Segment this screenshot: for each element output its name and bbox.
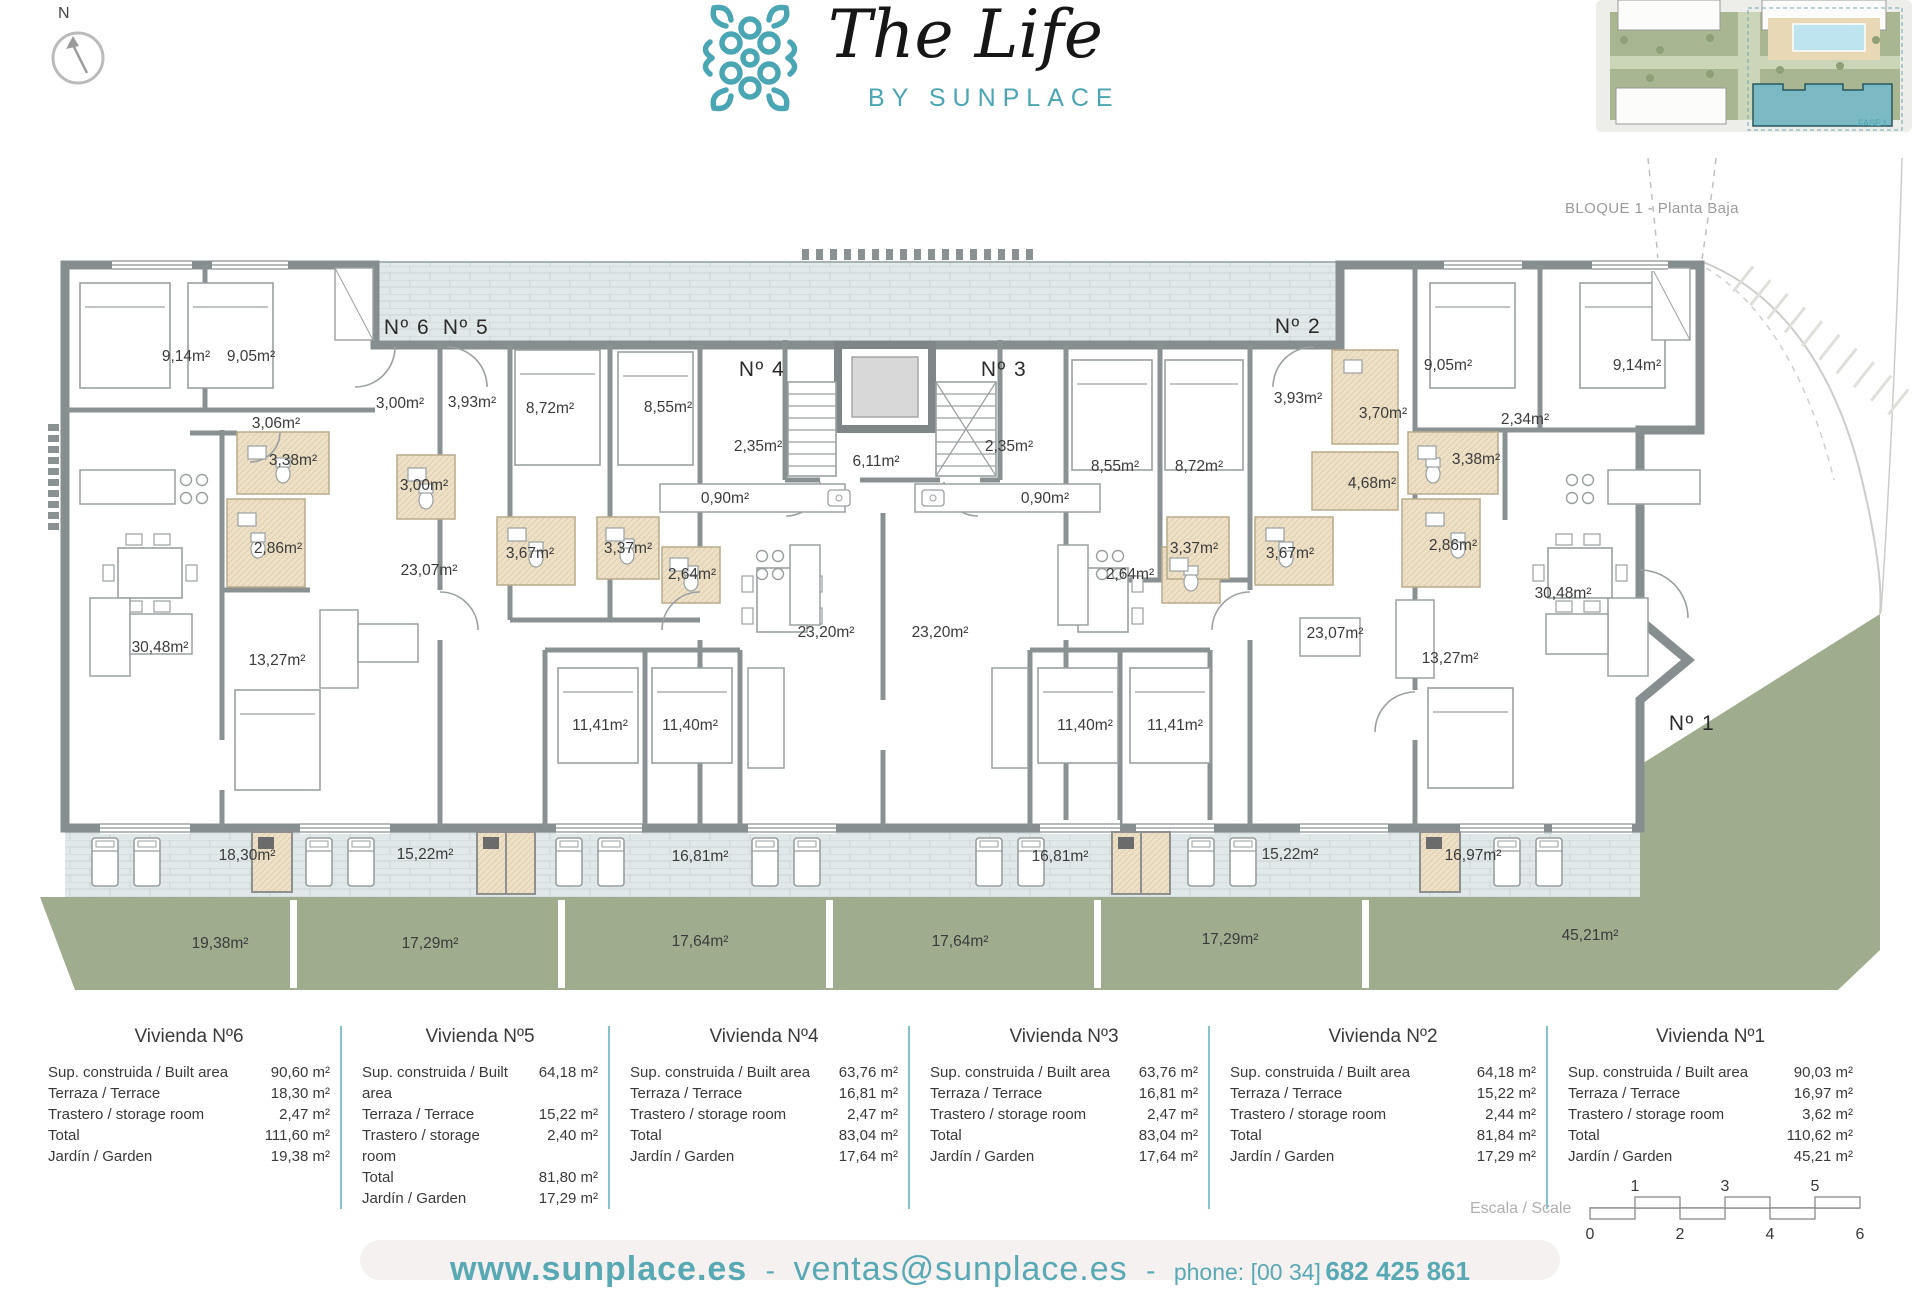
room-area-label: 2,86m² <box>1429 537 1477 554</box>
lounge-chair-icon <box>794 838 820 886</box>
scale-tick: 5 <box>1811 1178 1820 1196</box>
vivienda-title: Vivienda Nº5 <box>362 1026 598 1048</box>
scale-tick: 6 <box>1856 1226 1865 1244</box>
lounge-chair-icon <box>752 838 778 886</box>
room-area-label: 11,40m² <box>1057 717 1113 734</box>
vivienda-row-label: Trastero / storage room <box>1230 1104 1386 1125</box>
room-area-label: 8,55m² <box>644 399 692 416</box>
unit-number-label: Nº 6 <box>384 316 430 339</box>
vivienda-row: Trastero / storage room3,62 m² <box>1568 1104 1853 1125</box>
vivienda-row-label: Trastero / storage room <box>362 1125 514 1167</box>
vivienda-row-label: Jardín / Garden <box>930 1146 1034 1167</box>
room-area-label: 3,93m² <box>448 394 496 411</box>
vivienda-row: Terraza / Terrace16,81 m² <box>630 1083 898 1104</box>
room-area-label: 2,86m² <box>254 540 302 557</box>
vivienda-row-label: Sup. construida / Built area <box>630 1062 810 1083</box>
room-area-label: 23,07m² <box>401 562 458 579</box>
vivienda-title: Vivienda Nº4 <box>630 1026 898 1048</box>
room-area-label: 3,00m² <box>376 395 424 412</box>
vivienda-row: Trastero / storage room2,47 m² <box>930 1104 1198 1125</box>
vivienda-table: Vivienda Nº3Sup. construida / Built area… <box>908 1026 1208 1209</box>
room-area-label: 3,38m² <box>269 452 317 469</box>
vivienda-row-label: Total <box>630 1125 662 1146</box>
room-area-label: 3,37m² <box>1170 540 1218 557</box>
vivienda-row-value: 2,40 m² <box>514 1125 598 1167</box>
vivienda-row-label: Trastero / storage room <box>48 1104 204 1125</box>
vivienda-row-label: Sup. construida / Built area <box>1230 1062 1410 1083</box>
vivienda-row-value: 17,64 m² <box>814 1146 898 1167</box>
vivienda-row-value: 83,04 m² <box>1114 1125 1198 1146</box>
vivienda-row-value: 64,18 m² <box>514 1062 598 1104</box>
room-area-label: 9,05m² <box>227 348 275 365</box>
room-area-label: 3,67m² <box>1266 545 1314 562</box>
terrace-area-label: 16,81m² <box>672 848 729 865</box>
lounge-chair-icon <box>1230 838 1256 886</box>
vivienda-row-label: Terraza / Terrace <box>930 1083 1042 1104</box>
footer: www.sunplace.es - ventas@sunplace.es - p… <box>0 1250 1920 1289</box>
vivienda-row-value: 81,80 m² <box>514 1167 598 1188</box>
vivienda-row-value: 2,44 m² <box>1452 1104 1536 1125</box>
vivienda-row-value: 15,22 m² <box>1452 1083 1536 1104</box>
room-area-label: 13,27m² <box>1422 650 1479 667</box>
vivienda-row-label: Terraza / Terrace <box>48 1083 160 1104</box>
room-area-label: 3,93m² <box>1274 390 1322 407</box>
vivienda-row: Sup. construida / Built area90,03 m² <box>1568 1062 1853 1083</box>
terrace-area-label: 18,30m² <box>219 847 276 864</box>
vivienda-row: Jardín / Garden19,38 m² <box>48 1146 330 1167</box>
vivienda-row: Total111,60 m² <box>48 1125 330 1146</box>
unit-number-label: Nº 4 <box>739 358 785 381</box>
room-area-label: 8,72m² <box>1175 458 1223 475</box>
vivienda-row: Total81,80 m² <box>362 1167 598 1188</box>
lounge-chair-icon <box>1188 838 1214 886</box>
room-area-label: 2,34m² <box>1501 411 1549 428</box>
terrace <box>65 830 1640 897</box>
vivienda-row: Sup. construida / Built area63,76 m² <box>930 1062 1198 1083</box>
terrace-area-label: 15,22m² <box>1262 846 1319 863</box>
room-area-label: 23,07m² <box>1307 625 1364 642</box>
lounge-chair-icon <box>306 838 332 886</box>
vivienda-row-value: 17,29 m² <box>1452 1146 1536 1167</box>
vivienda-row: Trastero / storage room2,47 m² <box>630 1104 898 1125</box>
floorplan-page: { "header": { "compass_label": "N", "log… <box>0 0 1920 1280</box>
vivienda-row: Total83,04 m² <box>630 1125 898 1146</box>
lounge-chair-icon <box>976 838 1002 886</box>
vivienda-row-value: 2,47 m² <box>814 1104 898 1125</box>
vivienda-row-value: 110,62 m² <box>1769 1125 1853 1146</box>
vivienda-title: Vivienda Nº6 <box>48 1026 330 1048</box>
terrace-area-label: 16,97m² <box>1445 847 1502 864</box>
vivienda-row: Sup. construida / Built area63,76 m² <box>630 1062 898 1083</box>
vivienda-row: Sup. construida / Built area64,18 m² <box>362 1062 598 1104</box>
vivienda-row-label: Sup. construida / Built area <box>362 1062 514 1104</box>
room-area-label: 8,55m² <box>1091 458 1139 475</box>
vivienda-row-value: 19,38 m² <box>246 1146 330 1167</box>
vivienda-row: Trastero / storage room2,40 m² <box>362 1125 598 1167</box>
garden-area-label: 17,29m² <box>1202 931 1259 948</box>
vivienda-row-label: Total <box>48 1125 80 1146</box>
vivienda-row-label: Jardín / Garden <box>630 1146 734 1167</box>
lounge-chair-icon <box>348 838 374 886</box>
scale-tick: 2 <box>1676 1226 1685 1244</box>
vivienda-row-label: Trastero / storage room <box>630 1104 786 1125</box>
footer-email-link[interactable]: ventas@sunplace.es <box>793 1250 1127 1288</box>
garden-area-label: 17,29m² <box>402 935 459 952</box>
room-area-label: 11,41m² <box>572 717 628 734</box>
vivienda-row-label: Terraza / Terrace <box>1230 1083 1342 1104</box>
room-area-label: 3,67m² <box>506 545 554 562</box>
vivienda-row-value: 45,21 m² <box>1769 1146 1853 1167</box>
vivienda-row-value: 63,76 m² <box>1114 1062 1198 1083</box>
room-area-label: 11,40m² <box>662 717 718 734</box>
vivienda-row-value: 16,81 m² <box>1114 1083 1198 1104</box>
vivienda-row-value: 17,29 m² <box>514 1188 598 1209</box>
scale-tick: 1 <box>1631 1178 1640 1196</box>
room-area-label: 2,35m² <box>734 438 782 455</box>
vivienda-row: Jardín / Garden17,29 m² <box>362 1188 598 1209</box>
garden-area-label: 17,64m² <box>932 933 989 950</box>
vivienda-row: Terraza / Terrace16,97 m² <box>1568 1083 1853 1104</box>
room-area-label: 23,20m² <box>912 624 969 641</box>
vivienda-row-value: 63,76 m² <box>814 1062 898 1083</box>
footer-separator: - <box>752 1255 789 1286</box>
vivienda-row: Trastero / storage room2,47 m² <box>48 1104 330 1125</box>
vivienda-row: Terraza / Terrace18,30 m² <box>48 1083 330 1104</box>
vivienda-row: Jardín / Garden45,21 m² <box>1568 1146 1853 1167</box>
vivienda-row-label: Sup. construida / Built area <box>930 1062 1110 1083</box>
vivienda-row: Trastero / storage room2,44 m² <box>1230 1104 1536 1125</box>
room-area-label: 30,48m² <box>1535 585 1592 602</box>
vivienda-title: Vivienda Nº1 <box>1568 1026 1853 1048</box>
room-area-label: 0,90m² <box>1021 490 1069 507</box>
scale-tick: 3 <box>1721 1178 1730 1196</box>
vivienda-row-label: Jardín / Garden <box>48 1146 152 1167</box>
room-area-label: 3,00m² <box>400 477 448 494</box>
room-area-label: 2,64m² <box>1106 566 1154 583</box>
room-area-label: 30,48m² <box>132 639 189 656</box>
vivienda-row-label: Trastero / storage room <box>930 1104 1086 1125</box>
terrace-area-label: 15,22m² <box>397 846 454 863</box>
room-area-label: 9,14m² <box>1613 357 1661 374</box>
room-area-label: 9,05m² <box>1424 357 1472 374</box>
scale-label: Escala / Scale <box>1470 1200 1571 1218</box>
vivienda-row-value: 64,18 m² <box>1452 1062 1536 1083</box>
lounge-chair-icon <box>556 838 582 886</box>
vivienda-row-label: Total <box>362 1167 394 1188</box>
room-area-label: 2,35m² <box>985 438 1033 455</box>
footer-phone-label: phone: [00 34] <box>1174 1259 1321 1285</box>
room-area-label: 13,27m² <box>249 652 306 669</box>
vivienda-row: Terraza / Terrace15,22 m² <box>362 1104 598 1125</box>
scale-tick: 0 <box>1586 1226 1595 1244</box>
room-area-label: 6,11m² <box>852 453 899 470</box>
garden-area-label: 45,21m² <box>1562 927 1619 944</box>
vivienda-row: Terraza / Terrace16,81 m² <box>930 1083 1198 1104</box>
vivienda-row-value: 83,04 m² <box>814 1125 898 1146</box>
vivienda-row-value: 90,03 m² <box>1769 1062 1853 1083</box>
vivienda-row-value: 81,84 m² <box>1452 1125 1536 1146</box>
vivienda-row: Jardín / Garden17,64 m² <box>930 1146 1198 1167</box>
room-area-label: 4,68m² <box>1348 475 1396 492</box>
vivienda-row-label: Jardín / Garden <box>362 1188 466 1209</box>
vivienda-row-value: 15,22 m² <box>514 1104 598 1125</box>
room-area-label: 3,06m² <box>252 415 300 432</box>
vivienda-row-label: Total <box>1568 1125 1600 1146</box>
room-area-label: 23,20m² <box>798 624 855 641</box>
room-area-label: 3,37m² <box>604 540 652 557</box>
vivienda-row: Terraza / Terrace15,22 m² <box>1230 1083 1536 1104</box>
vivienda-row: Total110,62 m² <box>1568 1125 1853 1146</box>
lounge-chair-icon <box>92 838 118 886</box>
vivienda-row-value: 18,30 m² <box>246 1083 330 1104</box>
room-area-label: 2,64m² <box>668 566 716 583</box>
vivienda-table: Vivienda Nº5Sup. construida / Built area… <box>340 1026 608 1209</box>
unit-number-label: Nº 3 <box>981 358 1027 381</box>
room-area-label: 9,14m² <box>162 348 210 365</box>
vivienda-row: Total81,84 m² <box>1230 1125 1536 1146</box>
vivienda-row-label: Total <box>1230 1125 1262 1146</box>
vivienda-row-value: 16,81 m² <box>814 1083 898 1104</box>
vivienda-row-label: Trastero / storage room <box>1568 1104 1724 1125</box>
vivienda-row-label: Sup. construida / Built area <box>1568 1062 1748 1083</box>
rear-patio <box>375 262 1340 345</box>
room-area-label: 0,90m² <box>701 490 749 507</box>
vivienda-row-value: 90,60 m² <box>246 1062 330 1083</box>
vivienda-row-label: Jardín / Garden <box>1230 1146 1334 1167</box>
vivienda-row: Jardín / Garden17,64 m² <box>630 1146 898 1167</box>
vivienda-row-label: Jardín / Garden <box>1568 1146 1672 1167</box>
room-area-label: 3,70m² <box>1359 405 1407 422</box>
footer-website-link[interactable]: www.sunplace.es <box>450 1250 747 1288</box>
room-area-label: 11,41m² <box>1147 717 1203 734</box>
lounge-chair-icon <box>1536 838 1562 886</box>
vivienda-row-label: Total <box>930 1125 962 1146</box>
vivienda-row-value: 111,60 m² <box>246 1125 330 1146</box>
footer-separator: - <box>1132 1255 1169 1286</box>
vivienda-table: Vivienda Nº6Sup. construida / Built area… <box>28 1026 340 1209</box>
terrace-area-label: 16,81m² <box>1032 848 1089 865</box>
vivienda-row: Sup. construida / Built area64,18 m² <box>1230 1062 1536 1083</box>
vivienda-row-value: 17,64 m² <box>1114 1146 1198 1167</box>
vivienda-row-label: Sup. construida / Built area <box>48 1062 228 1083</box>
vivienda-row-value: 3,62 m² <box>1769 1104 1853 1125</box>
scale-tick: 4 <box>1766 1226 1775 1244</box>
vivienda-row-value: 16,97 m² <box>1769 1083 1853 1104</box>
lounge-chair-icon <box>134 838 160 886</box>
vivienda-row-label: Terraza / Terrace <box>1568 1083 1680 1104</box>
garden-area-label: 19,38m² <box>192 935 249 952</box>
unit-number-label: Nº 5 <box>443 316 489 339</box>
vivienda-table: Vivienda Nº4Sup. construida / Built area… <box>608 1026 908 1209</box>
vivienda-row: Sup. construida / Built area90,60 m² <box>48 1062 330 1083</box>
vivienda-row-value: 2,47 m² <box>1114 1104 1198 1125</box>
footer-phone-number[interactable]: 682 425 861 <box>1325 1256 1470 1286</box>
vivienda-row-value: 2,47 m² <box>246 1104 330 1125</box>
vivienda-row: Jardín / Garden17,29 m² <box>1230 1146 1536 1167</box>
garden-area-label: 17,64m² <box>672 933 729 950</box>
vivienda-row-label: Terraza / Terrace <box>362 1104 474 1125</box>
lounge-chair-icon <box>598 838 624 886</box>
vivienda-title: Vivienda Nº2 <box>1230 1026 1536 1048</box>
room-area-label: 8,72m² <box>526 400 574 417</box>
vivienda-row: Total83,04 m² <box>930 1125 1198 1146</box>
vivienda-title: Vivienda Nº3 <box>930 1026 1198 1048</box>
unit-number-label: Nº 2 <box>1275 315 1321 338</box>
vivienda-row-label: Terraza / Terrace <box>630 1083 742 1104</box>
unit-number-label: Nº 1 <box>1669 712 1715 735</box>
room-area-label: 3,38m² <box>1452 451 1500 468</box>
